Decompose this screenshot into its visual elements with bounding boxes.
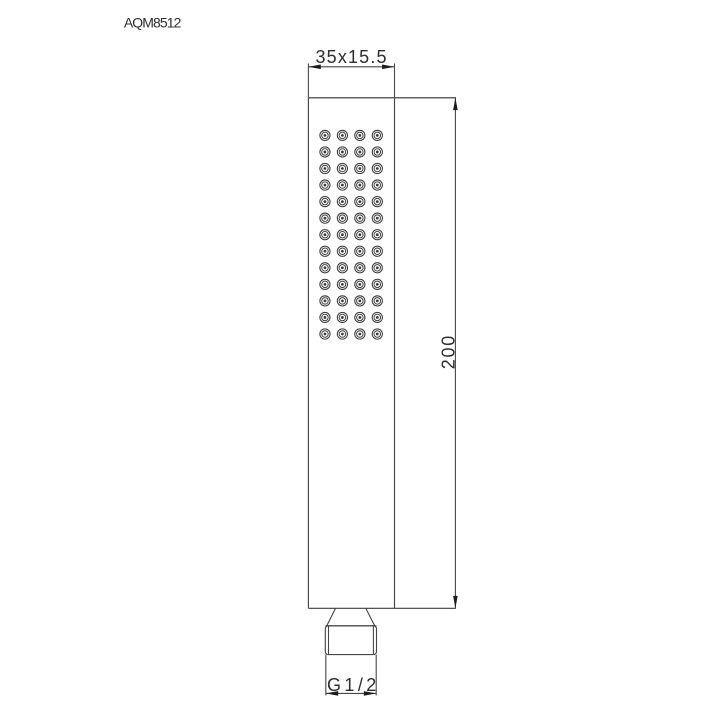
svg-text:200: 200: [439, 336, 459, 370]
svg-text:G1/2: G1/2: [327, 675, 376, 695]
svg-text:35x15.5: 35x15.5: [316, 47, 387, 67]
svg-text:AQM8512: AQM8512: [124, 15, 182, 31]
